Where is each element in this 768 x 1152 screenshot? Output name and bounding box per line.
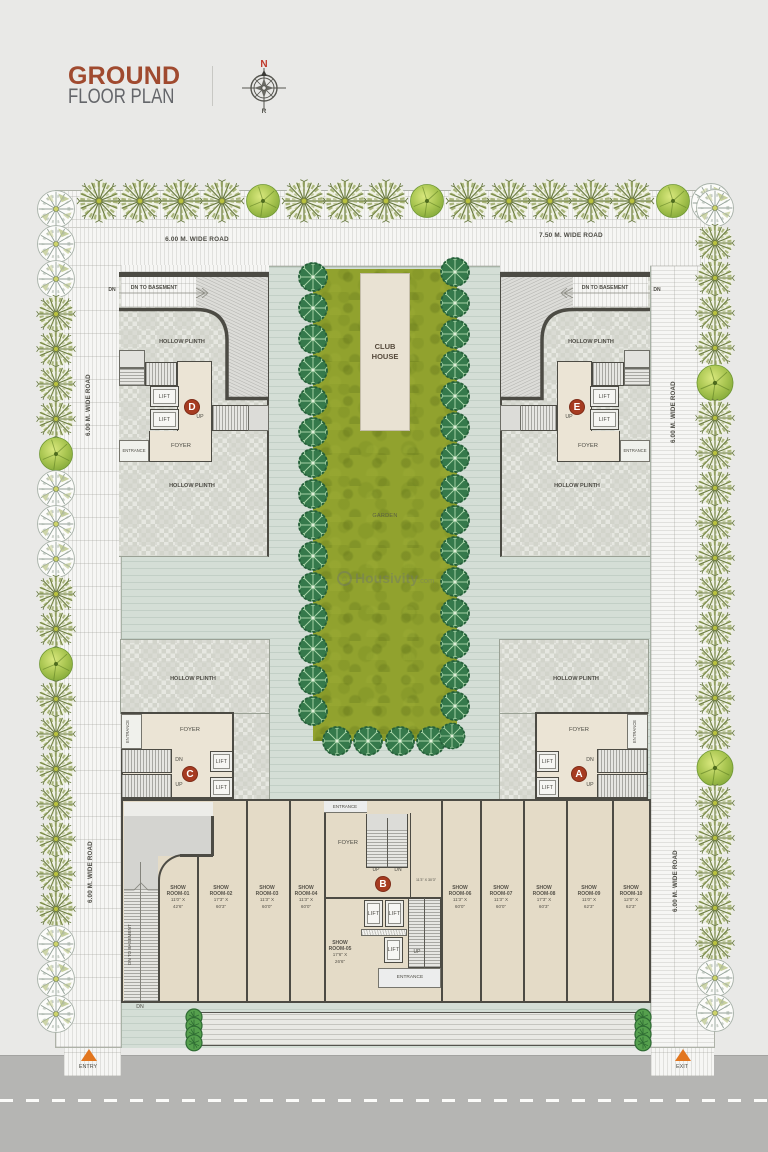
- svg-text:N: N: [260, 59, 267, 70]
- svg-text:R: R: [262, 108, 267, 115]
